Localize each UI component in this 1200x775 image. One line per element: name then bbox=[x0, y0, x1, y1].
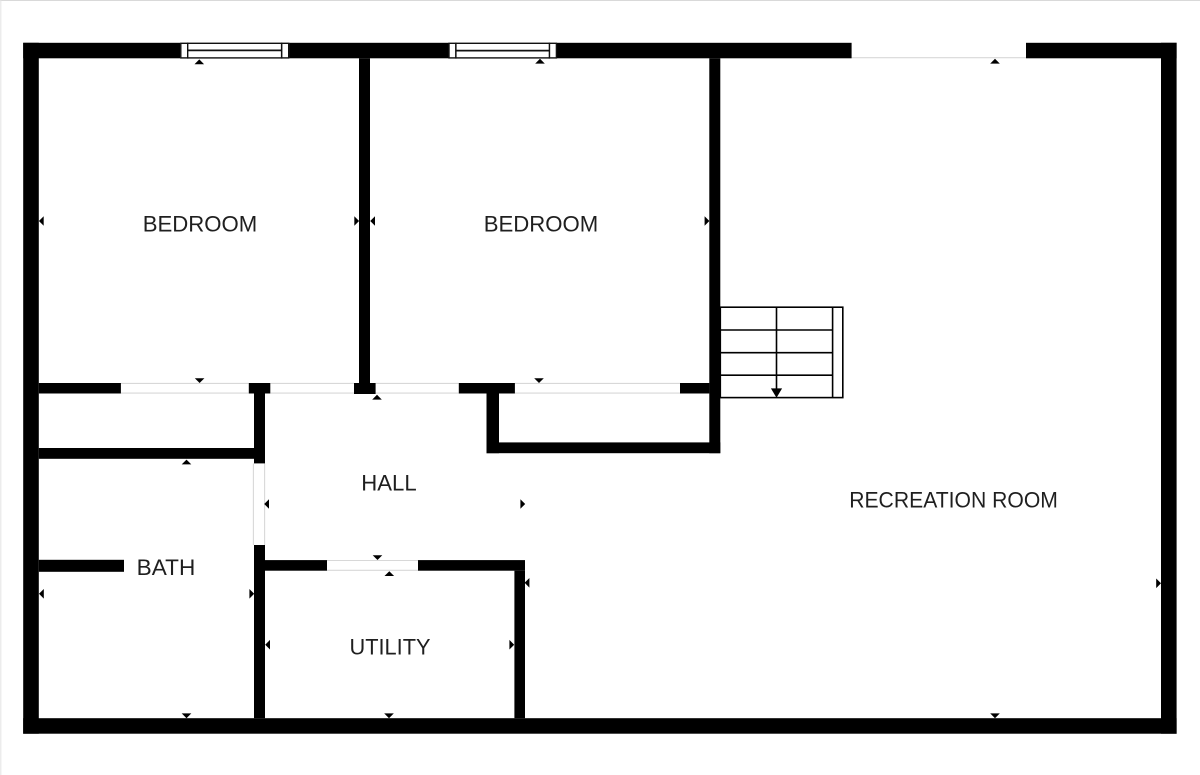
svg-text:BEDROOM: BEDROOM bbox=[484, 212, 599, 237]
svg-text:BATH: BATH bbox=[137, 555, 196, 580]
svg-text:RECREATION ROOM: RECREATION ROOM bbox=[849, 488, 1058, 513]
svg-text:BEDROOM: BEDROOM bbox=[143, 212, 258, 237]
svg-text:HALL: HALL bbox=[361, 471, 416, 496]
svg-text:UTILITY: UTILITY bbox=[350, 635, 431, 660]
